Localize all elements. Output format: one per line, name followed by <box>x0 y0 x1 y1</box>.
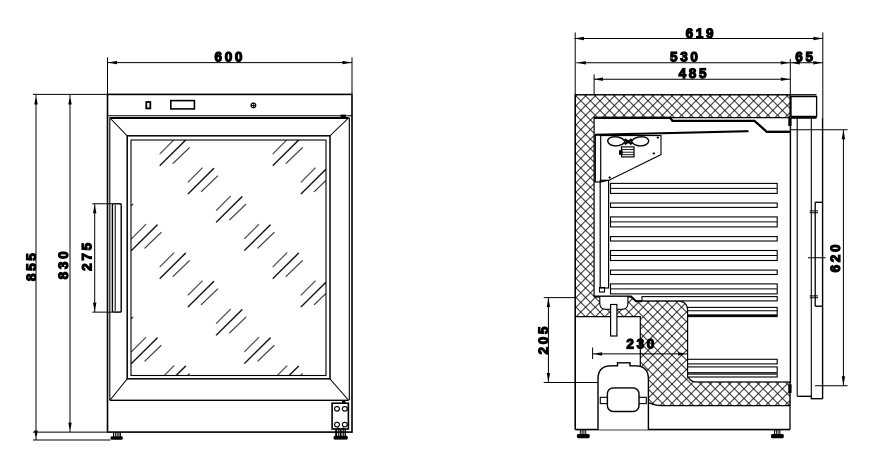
svg-text:530: 530 <box>670 49 701 64</box>
svg-text:275: 275 <box>79 240 94 271</box>
svg-text:620: 620 <box>828 242 843 273</box>
svg-text:65: 65 <box>795 49 815 64</box>
svg-text:600: 600 <box>214 49 245 64</box>
svg-text:619: 619 <box>686 26 717 41</box>
svg-text:485: 485 <box>679 66 710 81</box>
svg-text:205: 205 <box>536 324 551 355</box>
svg-text:830: 830 <box>56 249 71 280</box>
svg-text:855: 855 <box>24 250 39 281</box>
svg-text:230: 230 <box>626 337 657 352</box>
